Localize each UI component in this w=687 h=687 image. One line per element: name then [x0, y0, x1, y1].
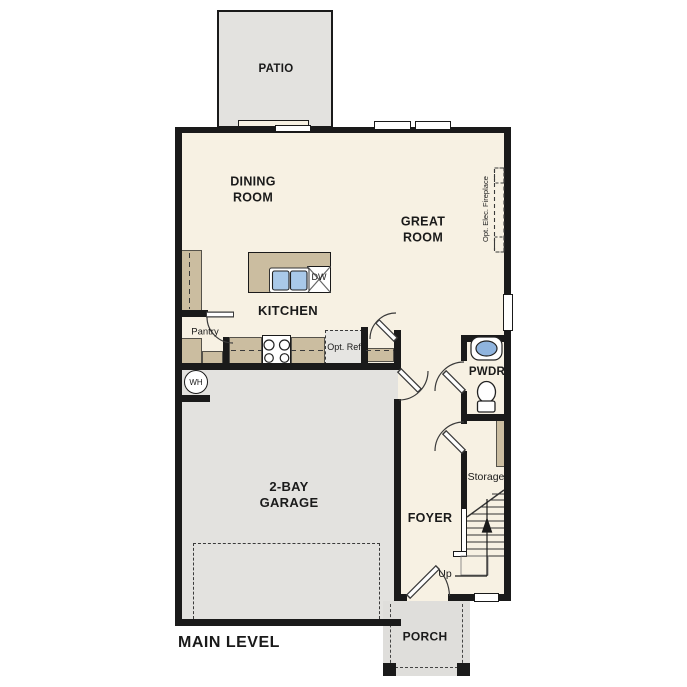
label-dishwasher: DW [312, 272, 327, 282]
porch-post-right [457, 663, 470, 676]
wall-garage-bottom [175, 619, 401, 626]
stair-rail [461, 508, 467, 557]
wall-hall-c [461, 451, 467, 508]
wall-kitchen-right [361, 327, 368, 370]
optional-fridge-box: Opt. Ref [325, 330, 363, 365]
window-right [503, 294, 513, 331]
range-box [262, 335, 291, 364]
wall-garage-right-upper [394, 330, 401, 369]
wall-powder-bottom [461, 414, 511, 421]
wall-hall-a [461, 335, 467, 361]
wall-bottom-b [448, 594, 474, 601]
room-label-powder: PWDR [469, 365, 505, 379]
wall-bottom-c [499, 594, 511, 601]
room-label-porch: PORCH [403, 630, 448, 645]
wall-top [175, 127, 511, 133]
window-front [474, 593, 499, 602]
wall-hall-b [461, 391, 467, 424]
room-label-patio: PATIO [259, 62, 294, 76]
porch-post-left [383, 663, 396, 676]
counter-bottom-right [291, 337, 325, 364]
label-up: Up [438, 568, 451, 580]
level-title: MAIN LEVEL [178, 634, 280, 652]
room-label-garage: 2-BAY GARAGE [247, 479, 332, 512]
window-top-1 [374, 121, 411, 130]
room-label-foyer: FOYER [408, 511, 453, 527]
water-heater: WH [184, 370, 208, 394]
stair-rail-foot [453, 551, 467, 557]
label-pantry: Pantry [191, 328, 218, 339]
label-storage: Storage [468, 471, 505, 483]
wall-powder-top [461, 335, 511, 342]
label-optional-fireplace: Opt. Elec. Fireplace [481, 163, 494, 255]
wall-garage-right-lower [394, 399, 401, 601]
room-label-kitchen: KITCHEN [258, 303, 318, 319]
drop-zone-cabinet [365, 348, 394, 362]
counter-bottom-left [229, 337, 262, 364]
sliding-door-panel-b [275, 125, 311, 132]
floor-plan: Opt. Ref WH [0, 0, 687, 687]
wall-pantry-stub [175, 310, 208, 317]
wall-left [175, 127, 182, 626]
room-label-dining: DINING ROOM [218, 174, 288, 205]
room-label-great: GREAT ROOM [393, 214, 453, 245]
window-top-2 [415, 121, 451, 130]
garage-door-dashed-outline [193, 543, 380, 619]
wall-wh-stub [175, 395, 210, 402]
